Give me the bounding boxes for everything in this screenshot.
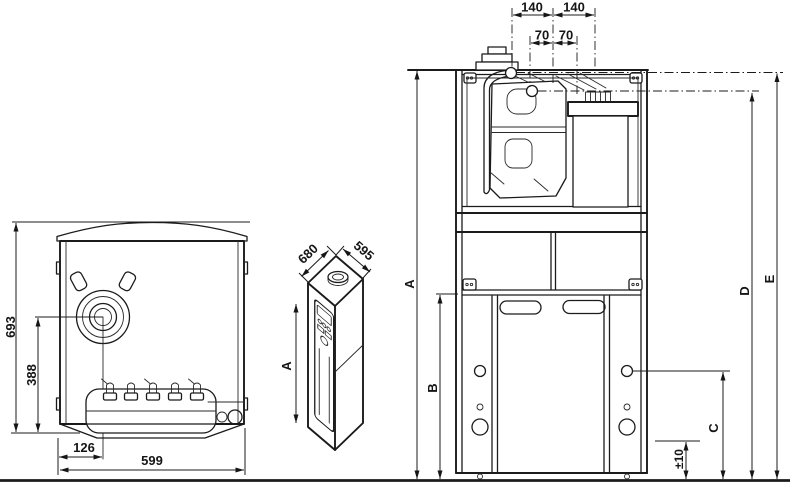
dim-label-c: C (706, 423, 721, 433)
installation-view: 140 140 70 70 A B C ±10 (402, 0, 783, 479)
dim-label-388: 388 (24, 364, 39, 386)
tank-body (573, 116, 628, 207)
dimension-E: E (762, 74, 777, 480)
base-section (462, 295, 641, 479)
dimension-foot-tolerance: ±10 (655, 441, 700, 479)
dim-label-e: E (762, 274, 777, 283)
flue-stack (488, 47, 506, 54)
control-panel (315, 299, 334, 433)
adjustable-foot (625, 474, 630, 479)
dim-label-tolerance: ±10 (672, 449, 686, 469)
adjustable-foot (478, 474, 483, 479)
middle-band (456, 213, 647, 232)
dim-label-140-left: 140 (521, 0, 543, 15)
isometric-view: 680 595 A (279, 238, 377, 450)
dim-label-693: 693 (3, 316, 18, 338)
dim-label-140-right: 140 (563, 0, 585, 15)
dim-label-b: B (425, 383, 440, 392)
upper-compartment (462, 68, 783, 208)
flue-connection-point (506, 68, 517, 79)
dimension-126: 126 (58, 438, 102, 462)
boiler-dimensional-drawing: 693 388 126 599 (0, 0, 790, 488)
dim-label-126: 126 (73, 440, 95, 455)
pipe-connection-point (527, 86, 538, 97)
door-panels (462, 232, 642, 290)
tank-header (568, 102, 638, 116)
dim-label-680: 680 (295, 241, 321, 267)
front-view: 693 388 126 599 (3, 222, 250, 475)
dim-label-a: A (402, 279, 417, 289)
dimension-D: D (737, 93, 752, 479)
dimension-B: B (425, 294, 458, 479)
dim-label-599: 599 (141, 453, 163, 468)
iso-height-label: A (279, 361, 294, 371)
dimension-A: A (402, 71, 417, 479)
dimension-140-140: 140 140 (512, 0, 595, 84)
dim-label-70-right: 70 (559, 28, 573, 43)
dim-label-d: D (737, 286, 752, 295)
iso-height-dimension: A (279, 304, 296, 423)
dim-label-70-left: 70 (535, 28, 549, 43)
